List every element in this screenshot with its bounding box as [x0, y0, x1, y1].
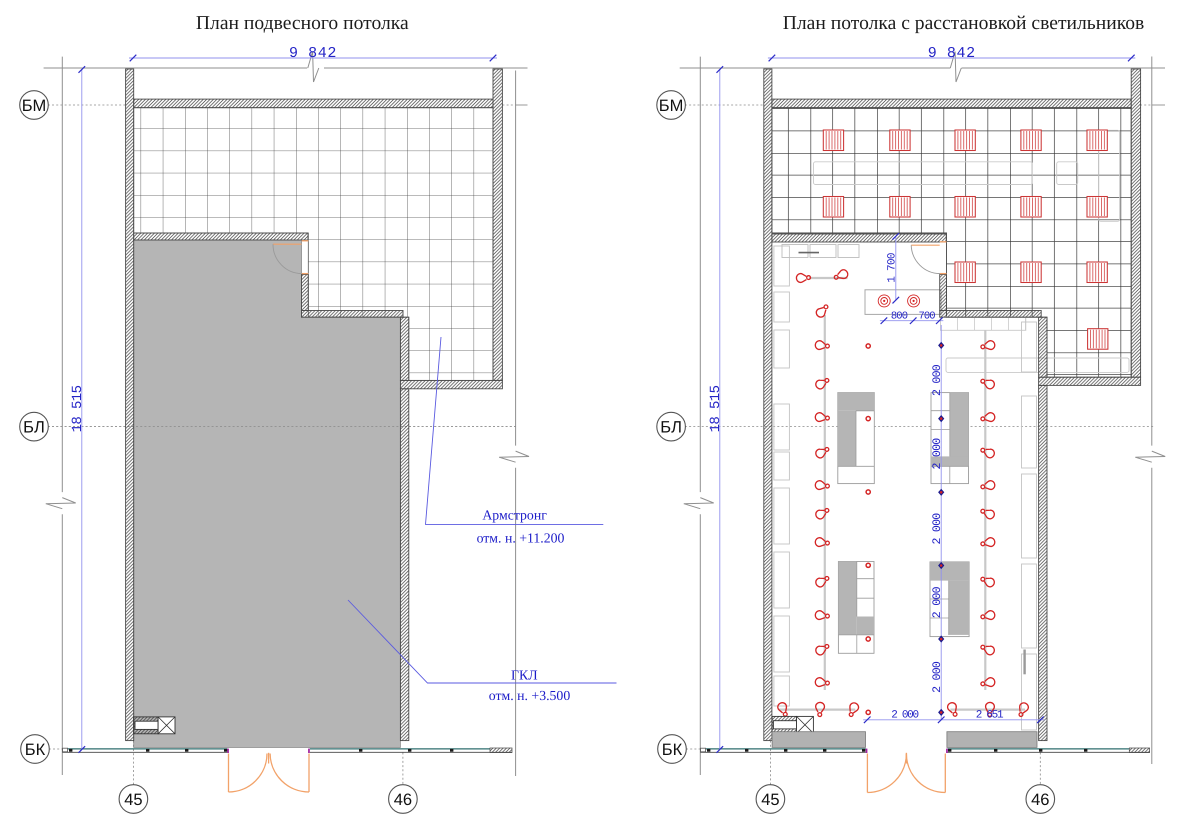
svg-text:18 515: 18 515	[708, 385, 724, 432]
svg-text:46: 46	[394, 791, 412, 809]
svg-text:2 000: 2 000	[931, 513, 944, 545]
svg-text:45: 45	[124, 791, 142, 809]
svg-text:2 000: 2 000	[931, 586, 944, 618]
svg-text:БЛ: БЛ	[660, 419, 682, 437]
svg-text:отм. н. +11.200: отм. н. +11.200	[477, 530, 565, 545]
svg-text:18 515: 18 515	[70, 385, 86, 432]
svg-text:2 000: 2 000	[931, 364, 944, 396]
svg-text:План потолка с расстановкой св: План потолка с расстановкой светильников	[783, 13, 1145, 34]
svg-text:1 700: 1 700	[886, 253, 898, 283]
svg-text:БК: БК	[662, 741, 683, 759]
svg-text:2 000: 2 000	[931, 661, 944, 693]
svg-text:46: 46	[1031, 791, 1049, 809]
svg-text:Армстронг: Армстронг	[482, 507, 547, 522]
svg-text:2 000: 2 000	[931, 438, 944, 470]
svg-text:9 842: 9 842	[289, 45, 337, 62]
svg-text:2 651: 2 651	[976, 709, 1004, 721]
svg-text:БЛ: БЛ	[23, 419, 45, 437]
svg-text:45: 45	[761, 791, 779, 809]
svg-text:800: 800	[891, 310, 908, 322]
svg-text:2 000: 2 000	[891, 709, 918, 721]
svg-text:9 842: 9 842	[928, 45, 976, 62]
svg-text:БМ: БМ	[22, 97, 47, 115]
svg-text:План подвесного потолка: План подвесного потолка	[196, 13, 409, 34]
svg-text:БК: БК	[25, 741, 46, 759]
svg-text:700: 700	[918, 310, 935, 322]
svg-text:ГКЛ: ГКЛ	[511, 667, 538, 682]
svg-text:БМ: БМ	[659, 97, 684, 115]
svg-text:отм. н. +3.500: отм. н. +3.500	[489, 688, 571, 703]
